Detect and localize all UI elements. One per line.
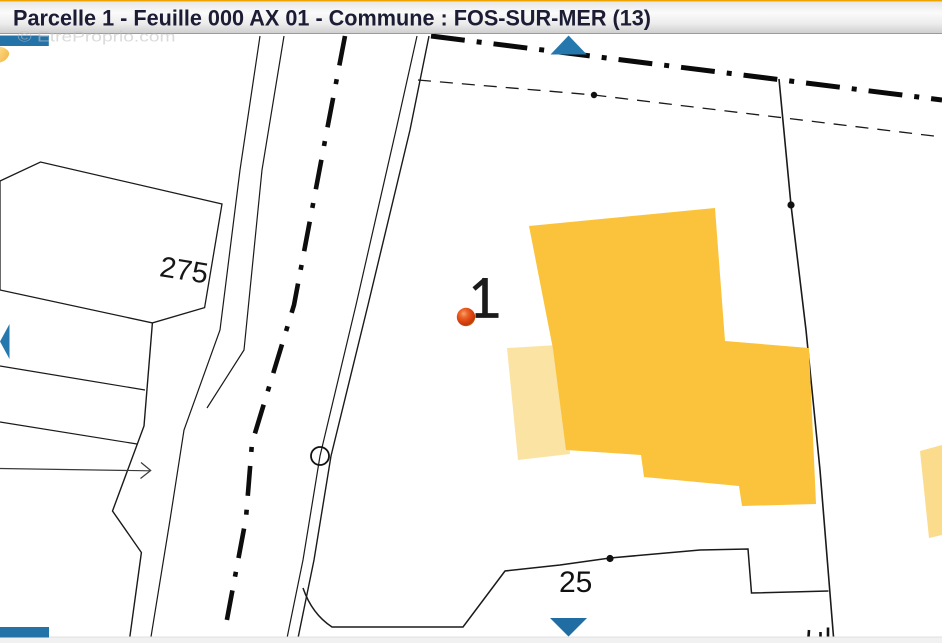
svg-text:Parcelle 1 - Feuille 000 AX 01: Parcelle 1 - Feuille 000 AX 01 - Commune…: [13, 6, 651, 31]
svg-text:25: 25: [559, 566, 592, 599]
svg-text:© EtreProprio.com: © EtreProprio.com: [18, 30, 176, 46]
